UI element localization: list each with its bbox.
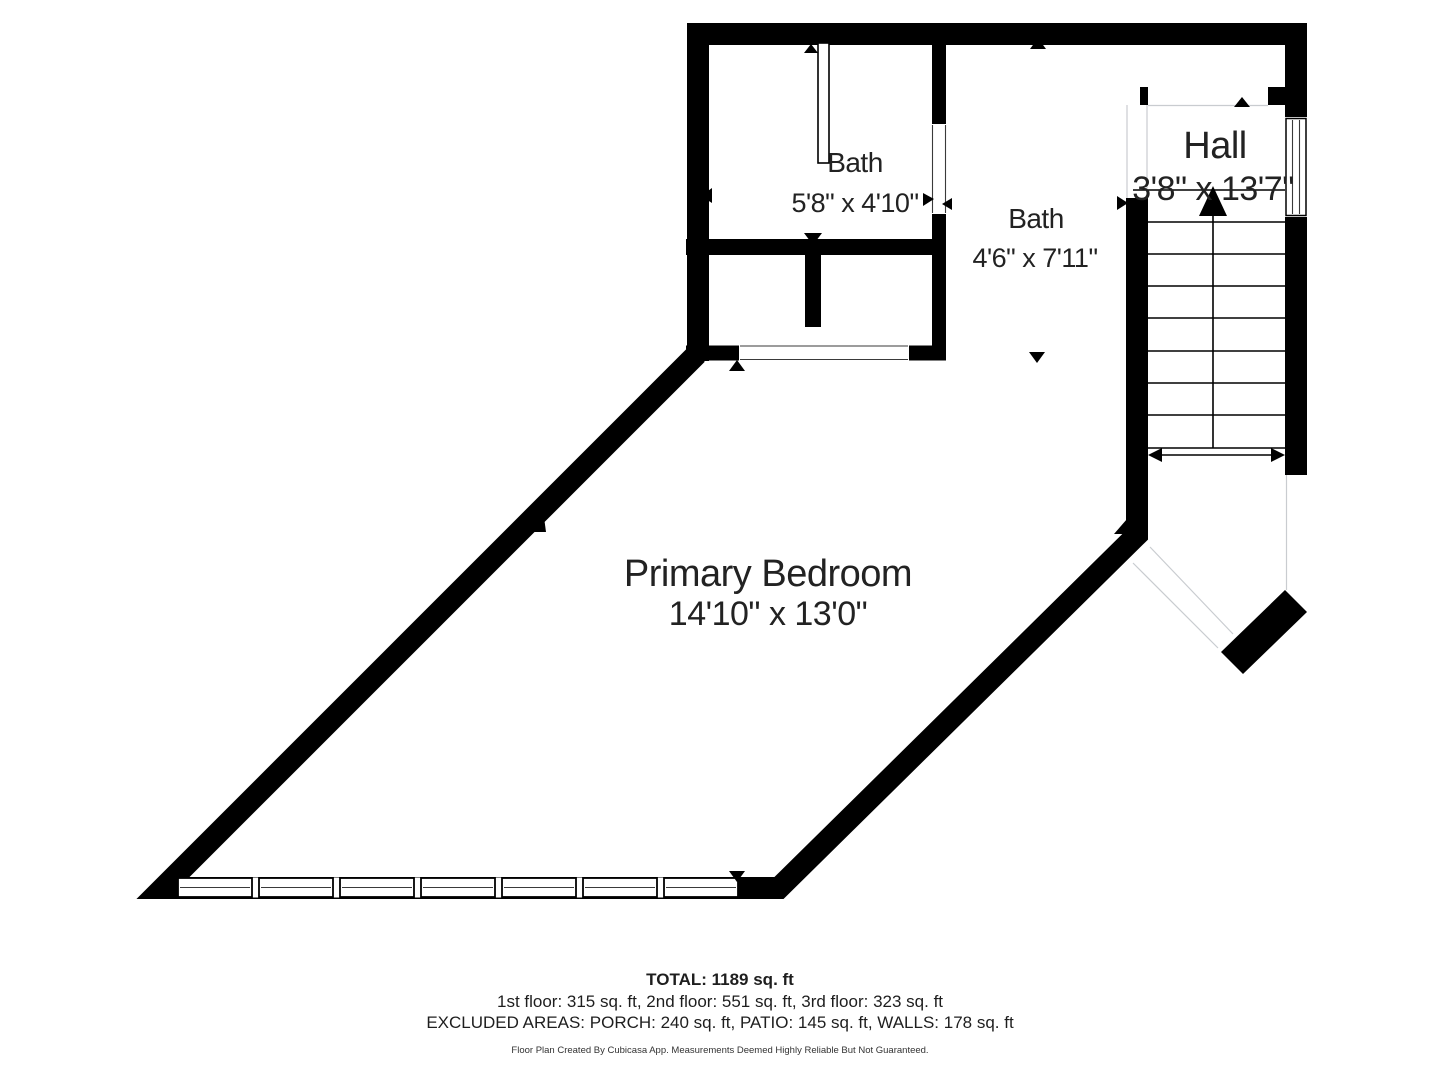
footer-total-area: TOTAL: 1189 sq. ft [646, 970, 794, 989]
stair-treads [1148, 222, 1285, 448]
floor-plan-page: Bath 5'8" x 4'10" Bath 4'6" x 7'11" Hall… [0, 0, 1440, 1080]
window-panels [178, 878, 738, 897]
room-dims-hall: 3'8" x 13'7" [1132, 170, 1294, 208]
wall-stub [1140, 87, 1148, 105]
bath-door-leaf [818, 43, 829, 163]
wall-stub [1268, 87, 1287, 105]
marker-triangle-icon [1029, 352, 1045, 363]
entry-bevel-wall [1221, 590, 1307, 674]
closet-wall-opening [739, 345, 909, 362]
marker-triangle-icon [1234, 97, 1250, 107]
stair-width-dimension-arrow [1148, 448, 1285, 462]
footer-excluded-areas: EXCLUDED AREAS: PORCH: 240 sq. ft, PATIO… [426, 1013, 1014, 1032]
room-label-primary-bedroom: Primary Bedroom [624, 553, 912, 595]
marker-triangle-icon [729, 360, 745, 371]
footer-floor-areas: 1st floor: 315 sq. ft, 2nd floor: 551 sq… [497, 992, 943, 1011]
entry-door-opening [1133, 547, 1233, 648]
staircase [1133, 186, 1285, 462]
room-label-hall: Hall [1183, 125, 1246, 167]
marker-triangle-icon [804, 44, 818, 53]
room-label-bath-2: Bath [1008, 203, 1064, 234]
room-dims-bath-2: 4'6" x 7'11" [972, 243, 1097, 273]
room-labels: Bath 5'8" x 4'10" Bath 4'6" x 7'11" Hall… [624, 125, 1294, 633]
arrowhead-left-icon [1148, 448, 1162, 462]
arrowhead-right-icon [1271, 448, 1285, 462]
footer: TOTAL: 1189 sq. ft 1st floor: 315 sq. ft… [426, 970, 1014, 1056]
room-dims-primary-bedroom: 14'10" x 13'0" [669, 595, 867, 633]
marker-triangle-icon [1114, 519, 1127, 534]
room-label-bath-1: Bath [827, 147, 883, 178]
outer-wall-diagonals-bottom [163, 198, 1137, 888]
opening-gap [931, 124, 947, 214]
room-dims-bath-1: 5'8" x 4'10" [791, 188, 918, 218]
footer-disclaimer: Floor Plan Created By Cubicasa App. Meas… [511, 1045, 928, 1056]
floor-plan-svg: Bath 5'8" x 4'10" Bath 4'6" x 7'11" Hall… [0, 0, 1440, 1080]
bedroom-window-band [178, 878, 738, 898]
baths-doorway-opening [931, 124, 947, 214]
